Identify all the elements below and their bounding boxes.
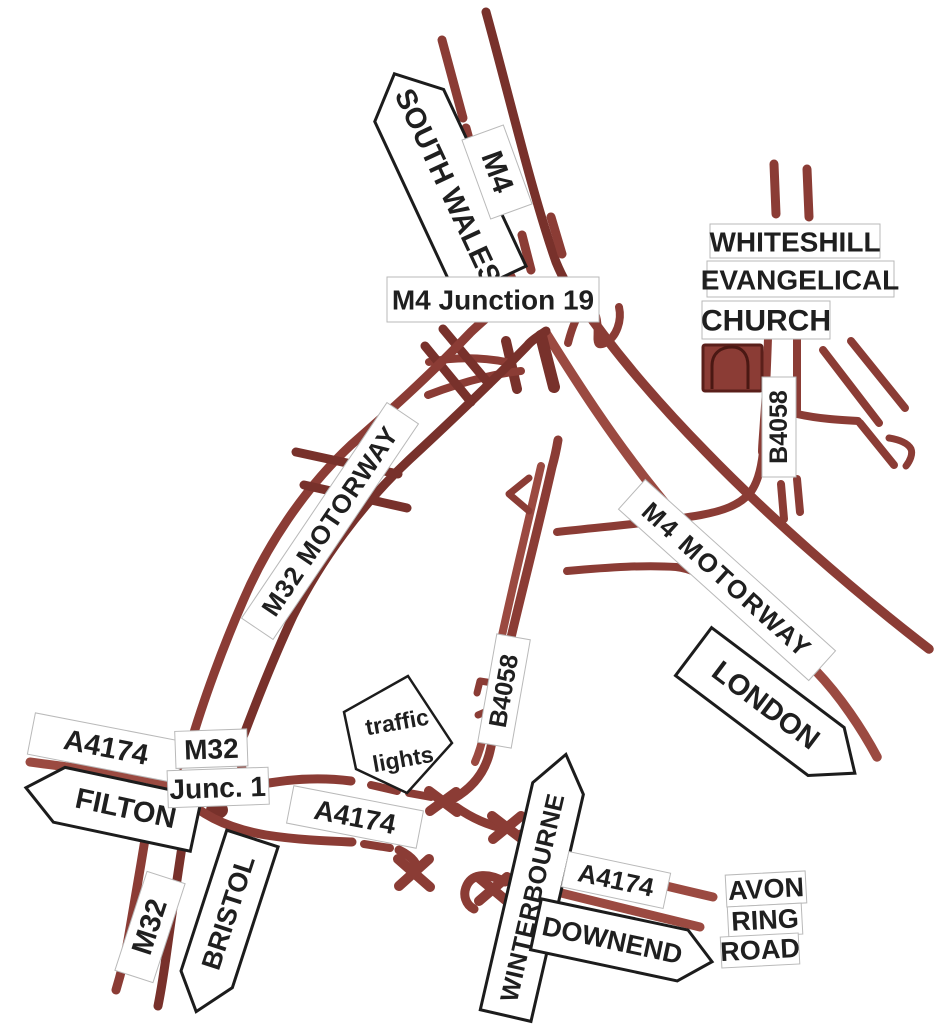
road-church-dash-1 (774, 164, 776, 214)
sign-bristol: BRISTOL (171, 830, 279, 1020)
church-label: CHURCH (701, 305, 831, 338)
map-canvas: SOUTH WALES M4 M4 Junction 19 WHITESHILL… (0, 0, 935, 1024)
road-mini-vert-2 (797, 479, 800, 512)
road-mini-vert-1 (781, 484, 784, 519)
road-right-diag-3 (860, 423, 894, 465)
map-labels: SOUTH WALES M4 M4 Junction 19 WHITESHILL… (20, 58, 899, 1022)
label-m4-junction-19: M4 Junction 19 (387, 277, 599, 322)
m4-junction-19-label: M4 Junction 19 (392, 285, 594, 316)
evangelical-label: EVANGELICAL (701, 265, 900, 296)
road-label: ROAD (720, 933, 801, 967)
hand-drawn-road-map: SOUTH WALES M4 M4 Junction 19 WHITESHILL… (0, 0, 935, 1024)
label-m32-motorway: M32 MOTORWAY (242, 403, 419, 640)
label-b4058-south: B4058 (478, 634, 531, 748)
whiteshill-label: WHITESHILL (709, 227, 880, 258)
avon-label: AVON (727, 872, 804, 906)
sign-london: LONDON (675, 628, 872, 797)
label-church-name: WHITESHILL EVANGELICAL CHURCH (701, 224, 900, 339)
label-b4058-church: B4058 (762, 377, 796, 477)
road-j19-link-lower (428, 371, 521, 395)
label-avon-ring-road: AVON RING ROAD (720, 871, 807, 968)
m32-junc-label-2: Junc. 1 (169, 771, 267, 805)
ring-label: RING (731, 903, 800, 936)
road-a4174-east-lower-dash (364, 844, 390, 848)
road-right-horizontal (797, 414, 858, 421)
b4058-south-label: B4058 (484, 652, 524, 730)
label-m32-junction-1: M32 Junc. 1 (166, 728, 270, 807)
m32-motorway-label: M32 MOTORWAY (255, 420, 404, 621)
road-b4058-arrowhead (509, 478, 529, 511)
m32-junc-label-1: M32 (184, 733, 240, 766)
sign-traffic-lights: traffic lights (344, 676, 452, 793)
road-church-dash-2 (807, 169, 809, 217)
b4058-church-label: B4058 (765, 390, 793, 464)
